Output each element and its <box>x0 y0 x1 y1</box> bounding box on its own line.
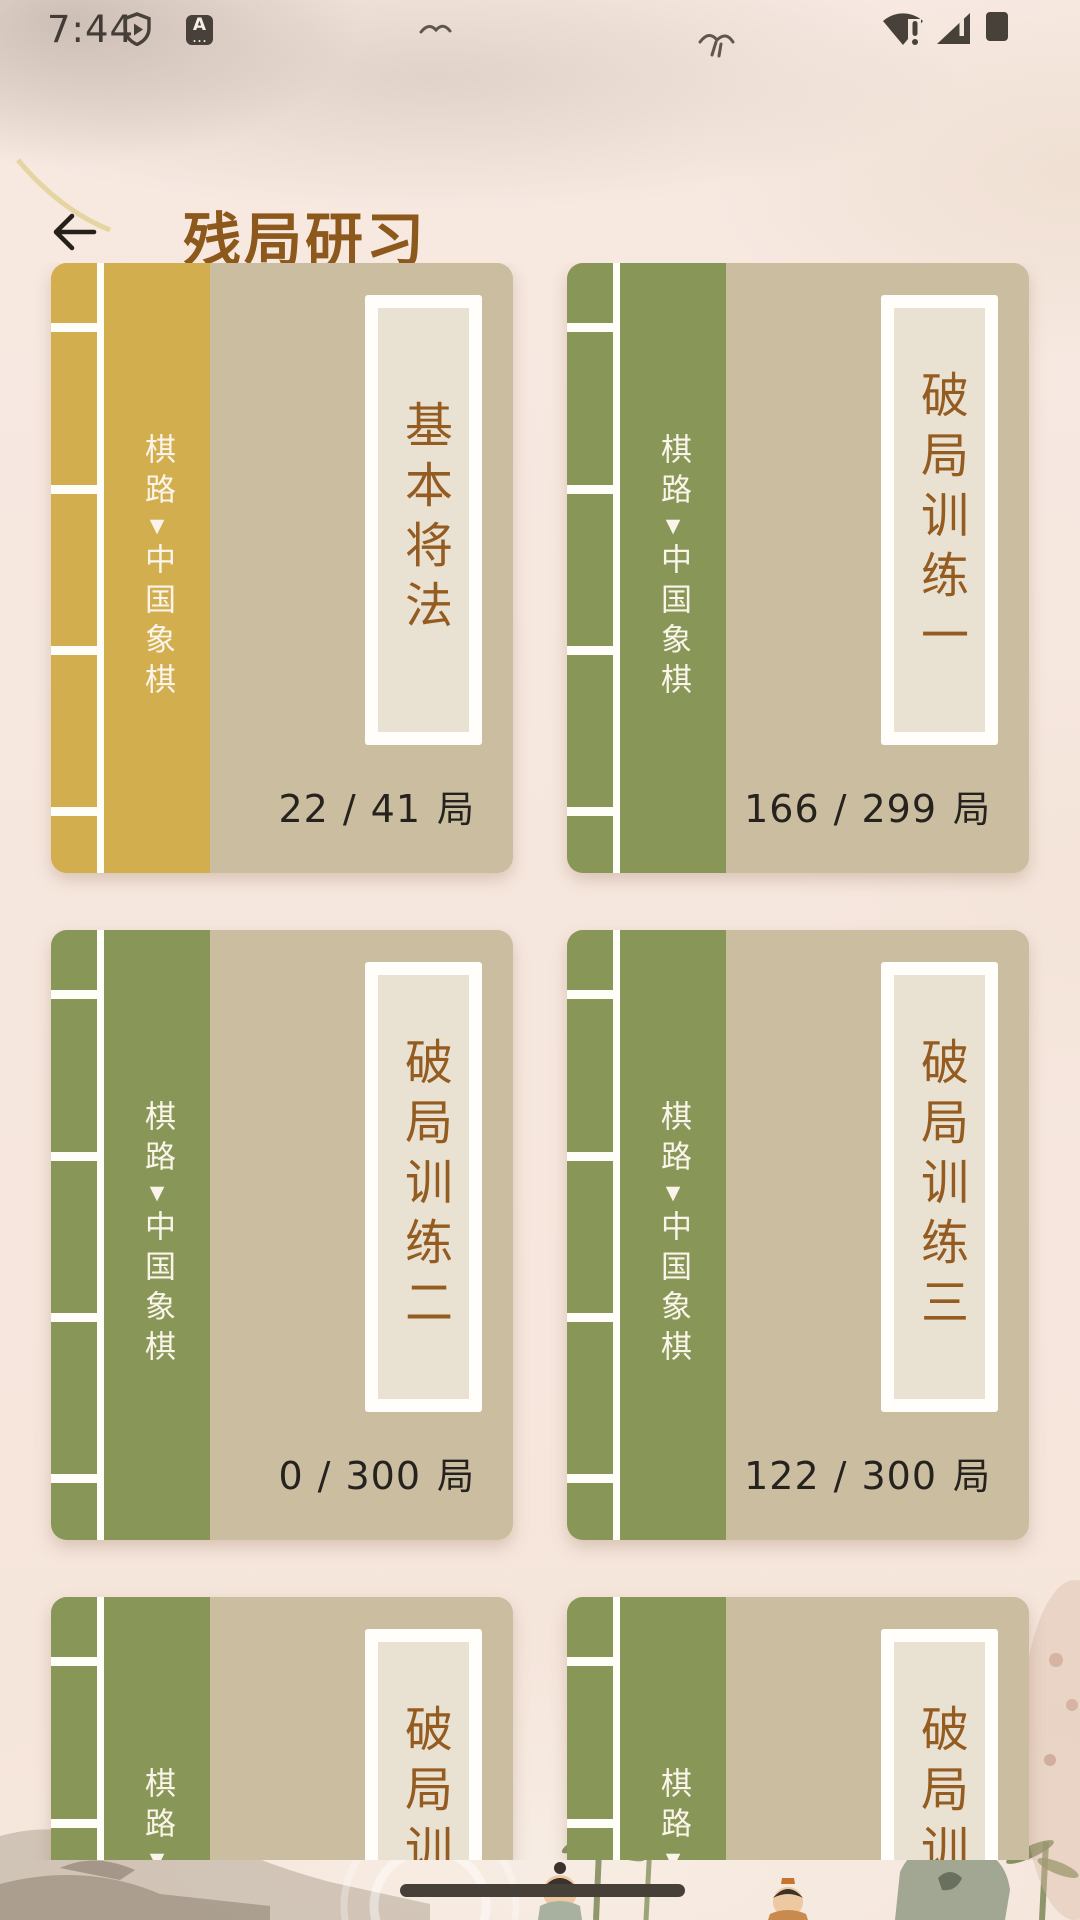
book-title-label: 破局训 <box>881 1629 998 1860</box>
book-binding-strip <box>51 263 97 873</box>
letter-a-badge-icon: A … <box>186 15 213 45</box>
progress-text: 122 / 300 局 <box>744 1446 991 1500</box>
book-title: 破局训练三 <box>894 1037 985 1337</box>
down-triangle-icon: ▼ <box>150 1182 165 1204</box>
series-spine-text: 棋路 ▼ 中国象棋 <box>620 1597 726 1860</box>
series-spine-text: 棋路 ▼ 中国象棋 <box>104 1597 210 1860</box>
book-title-label: 破局训练一 <box>881 295 998 745</box>
book-title: 破局训 <box>378 1704 469 1860</box>
book-title-label: 破局训练三 <box>881 962 998 1412</box>
book-card[interactable]: 棋路 ▼ 中国象棋 破局训 <box>51 1597 513 1860</box>
gesture-bar[interactable] <box>400 1884 685 1897</box>
series-spine-text: 棋路 ▼ 中国象棋 <box>620 263 726 873</box>
series-spine-text: 棋路 ▼ 中国象棋 <box>620 930 726 1540</box>
book-title-label: 基本将法 <box>365 295 482 745</box>
book-card[interactable]: 棋路 ▼ 中国象棋 破局训练一 166 / 299 局 <box>567 263 1029 873</box>
down-triangle-icon: ▼ <box>666 1849 681 1860</box>
book-title: 破局训练一 <box>894 370 985 670</box>
book-title: 破局训 <box>894 1704 985 1860</box>
down-triangle-icon: ▼ <box>150 515 165 537</box>
down-triangle-icon: ▼ <box>150 1849 165 1860</box>
cellular-signal-icon <box>936 13 970 44</box>
series-spine-text: 棋路 ▼ 中国象棋 <box>104 263 210 873</box>
wifi-alert-icon <box>882 12 928 46</box>
book-title: 破局训练二 <box>378 1037 469 1337</box>
book-card[interactable]: 棋路 ▼ 中国象棋 基本将法 22 / 41 局 <box>51 263 513 873</box>
shield-play-icon <box>122 12 152 46</box>
card-grid: 棋路 ▼ 中国象棋 基本将法 22 / 41 局 棋路 ▼ 中国象棋 破局训练一 <box>0 263 1080 1860</box>
book-binding-strip <box>567 930 613 1540</box>
book-card[interactable]: 棋路 ▼ 中国象棋 破局训 <box>567 1597 1029 1860</box>
book-title-label: 破局训练二 <box>365 962 482 1412</box>
book-card[interactable]: 棋路 ▼ 中国象棋 破局训练二 0 / 300 局 <box>51 930 513 1540</box>
book-binding-strip <box>51 930 97 1540</box>
book-title-label: 破局训 <box>365 1629 482 1860</box>
series-spine-text: 棋路 ▼ 中国象棋 <box>104 930 210 1540</box>
book-binding-strip <box>567 1597 613 1860</box>
down-triangle-icon: ▼ <box>666 515 681 537</box>
arrow-left-icon <box>50 240 98 255</box>
progress-text: 166 / 299 局 <box>744 779 991 833</box>
page-header: 残局研习 <box>0 95 1080 185</box>
progress-text: 0 / 300 局 <box>278 1446 475 1500</box>
battery-icon <box>986 12 1008 46</box>
status-bar: 7:44 A … <box>0 0 1080 60</box>
down-triangle-icon: ▼ <box>666 1182 681 1204</box>
book-binding-strip <box>51 1597 97 1860</box>
book-card[interactable]: 棋路 ▼ 中国象棋 破局训练三 122 / 300 局 <box>567 930 1029 1540</box>
progress-text: 22 / 41 局 <box>278 779 475 833</box>
back-button[interactable] <box>46 207 102 259</box>
book-binding-strip <box>567 263 613 873</box>
book-title: 基本将法 <box>378 400 469 640</box>
